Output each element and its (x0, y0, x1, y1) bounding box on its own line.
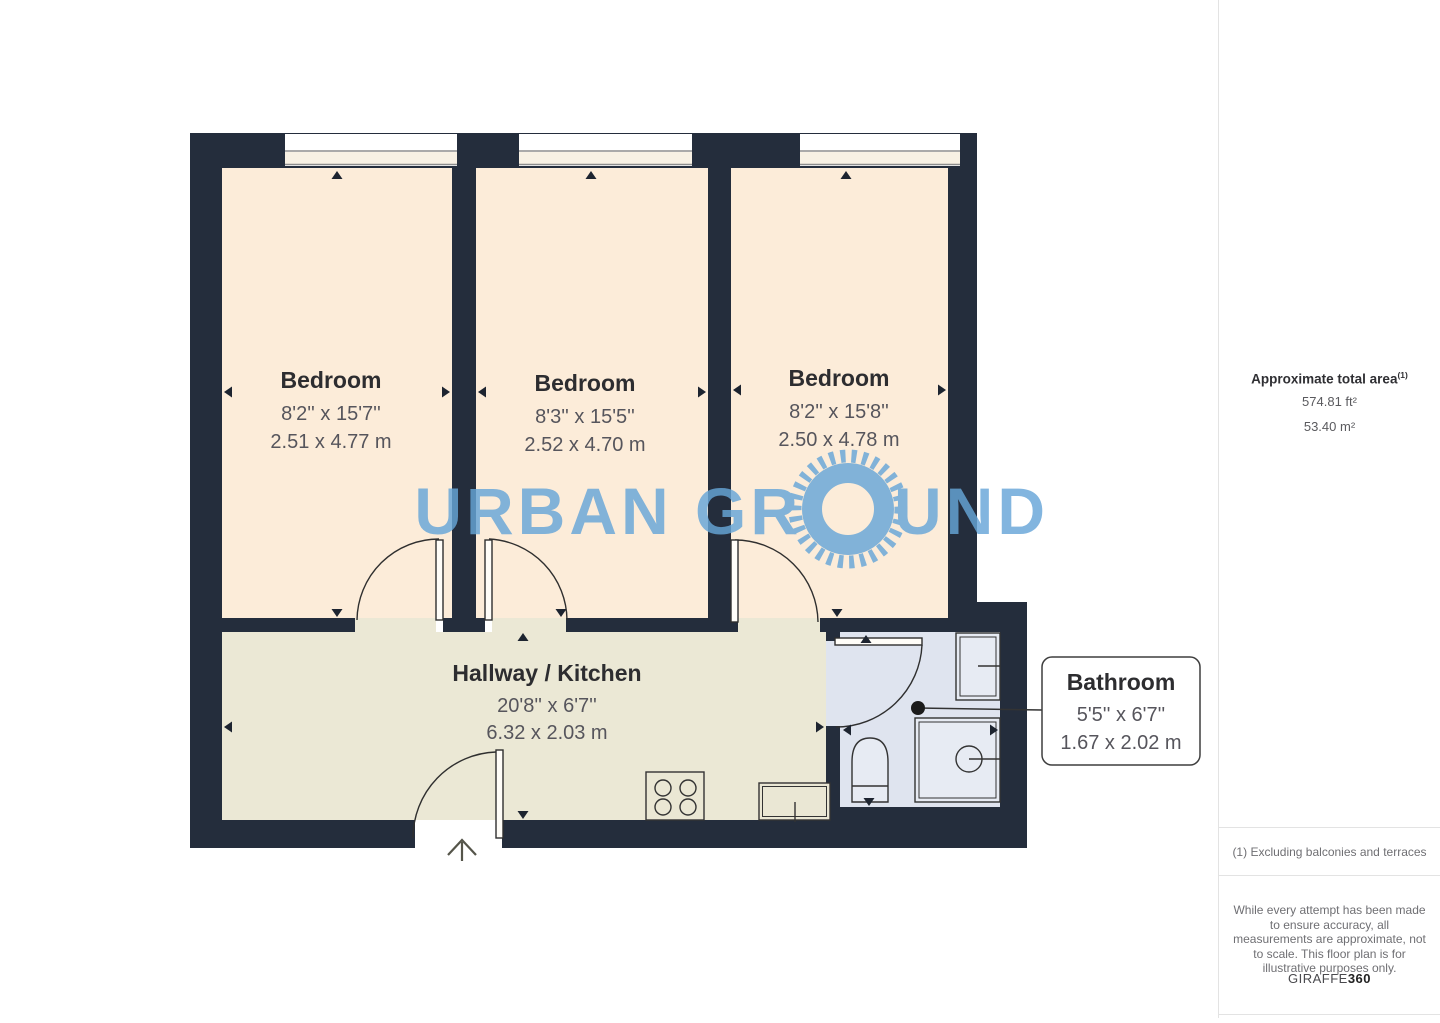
disclaimer-text: While every attempt has been made to ens… (1231, 903, 1429, 976)
bedroom-2-name: Bedroom (535, 370, 636, 396)
total-area-imperial: 574.81 ft² (1219, 392, 1440, 412)
window-icon (519, 134, 692, 166)
bedroom-2-dim-metric: 2.52 x 4.70 m (524, 434, 645, 456)
watermark-text-left: URBAN GR (414, 474, 802, 548)
hob-icon (646, 772, 704, 820)
brand-name: GIRAFFE (1288, 971, 1348, 986)
total-area-title-text: Approximate total area (1251, 372, 1397, 387)
window-icon (285, 134, 457, 166)
windows (285, 134, 960, 166)
bedroom-1-name: Bedroom (281, 367, 382, 393)
hallway-kitchen-dim-imperial: 20'8'' x 6'7'' (497, 695, 597, 717)
bathroom-dim-metric: 1.67 x 2.02 m (1060, 732, 1181, 754)
toilet-icon (852, 738, 888, 802)
total-area-metric: 53.40 m² (1219, 417, 1440, 437)
bedroom-1-floor (222, 168, 452, 618)
bedroom-3-dim-imperial: 8'2'' x 15'8'' (789, 401, 889, 423)
bedroom-3-name: Bedroom (789, 365, 890, 391)
watermark-text-right: UND (894, 474, 1049, 548)
window-icon (800, 134, 960, 166)
hallway-kitchen-name: Hallway / Kitchen (452, 660, 641, 686)
shower-icon (915, 718, 1000, 802)
bathroom-dim-imperial: 5'5'' x 6'7'' (1077, 704, 1166, 726)
entrance-arrow-icon (448, 840, 476, 861)
hallway-kitchen-dim-metric: 6.32 x 2.03 m (486, 722, 607, 744)
total-area-block: Approximate total area(1) 574.81 ft² 53.… (1219, 370, 1440, 437)
callout-anchor-dot (911, 701, 925, 715)
total-area-footnote-ref: (1) (1397, 370, 1407, 380)
bathroom-sink-icon (956, 633, 1000, 700)
footnote-text: (1) Excluding balconies and terraces (1232, 845, 1426, 859)
brand-logo: GIRAFFE360 (1219, 971, 1440, 986)
bedroom-1-dim-metric: 2.51 x 4.77 m (270, 431, 391, 453)
bedroom-3-dim-metric: 2.50 x 4.78 m (778, 429, 899, 451)
brand-suffix: 360 (1348, 971, 1371, 986)
bedroom-2-dim-imperial: 8'3'' x 15'5'' (535, 406, 635, 428)
info-sidebar: Approximate total area(1) 574.81 ft² 53.… (1218, 0, 1440, 1018)
disclaimer-section: While every attempt has been made to ens… (1219, 877, 1440, 1015)
bedroom-1-dim-imperial: 8'2'' x 15'7'' (281, 403, 381, 425)
total-area-title: Approximate total area(1) (1219, 370, 1440, 387)
footnote: (1) Excluding balconies and terraces (1219, 827, 1440, 876)
bathroom-name: Bathroom (1067, 669, 1176, 695)
kitchen-sink-icon (759, 783, 830, 822)
